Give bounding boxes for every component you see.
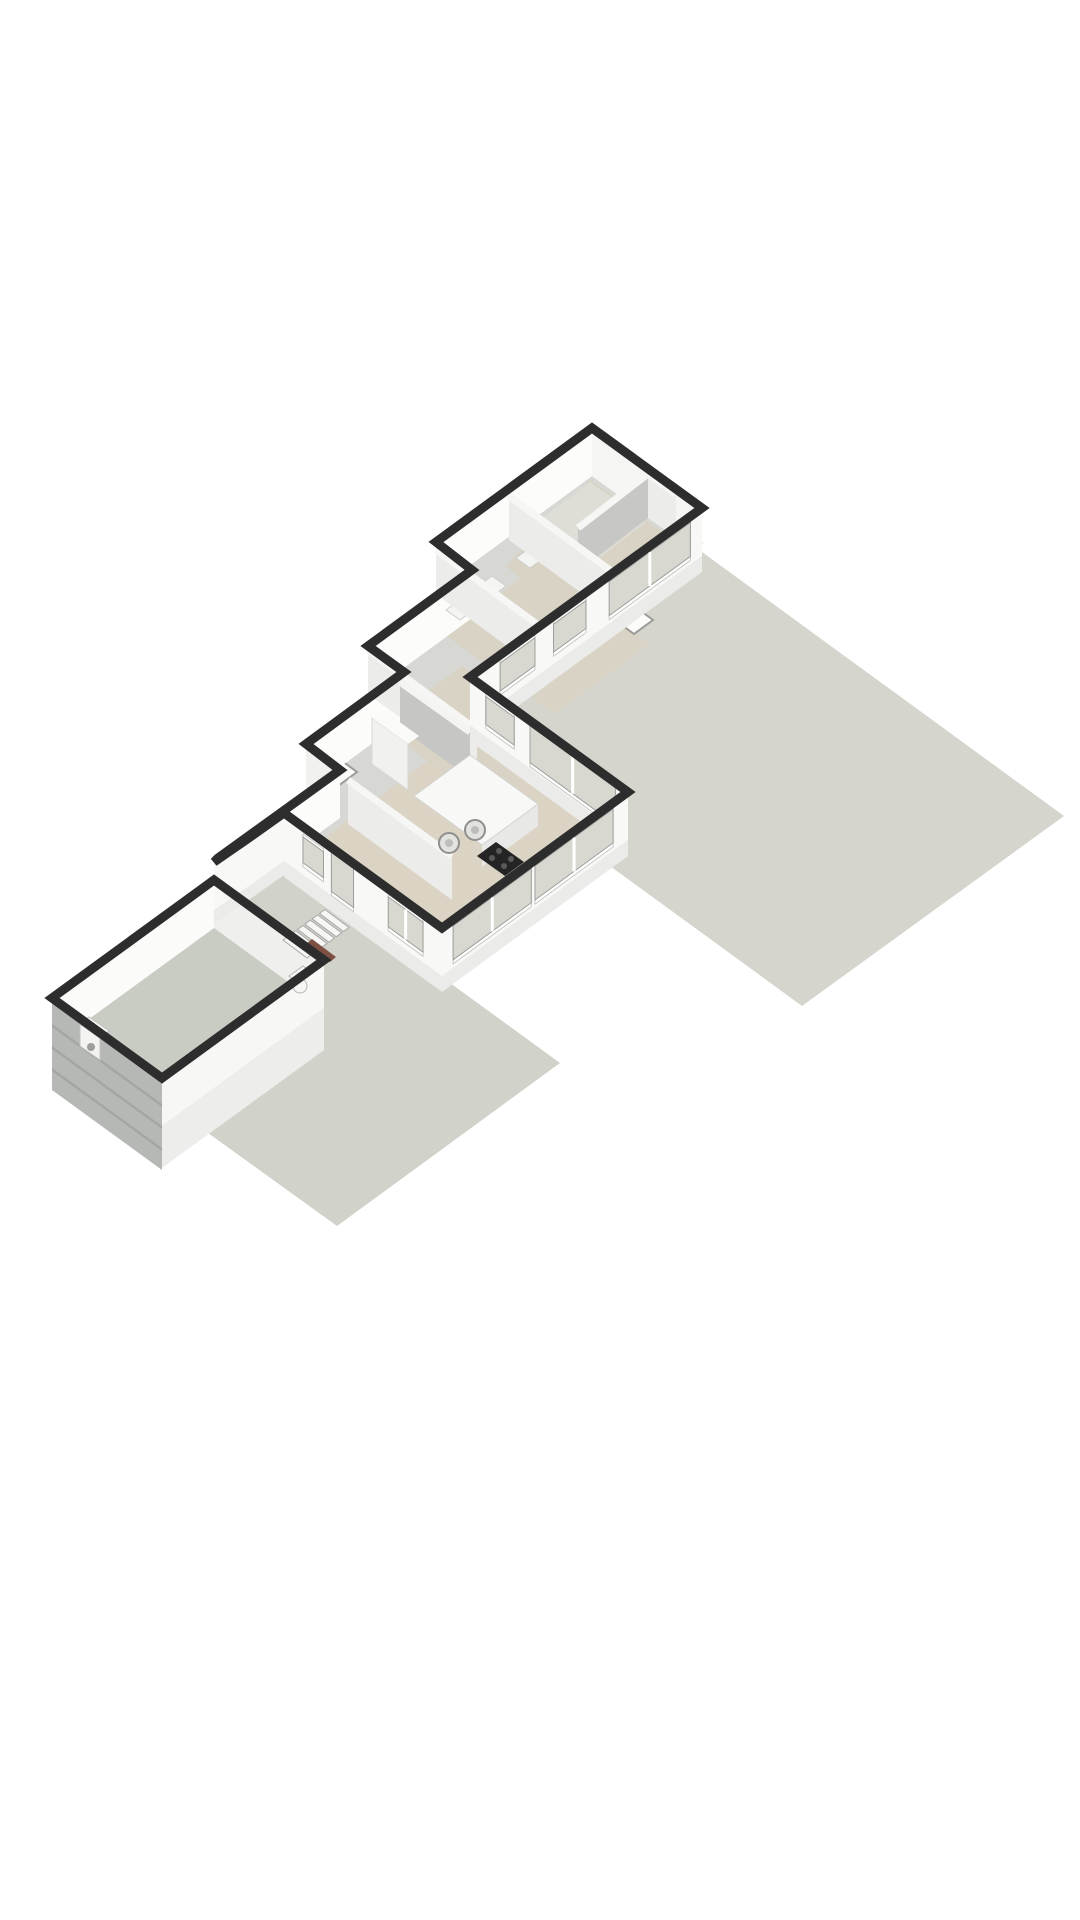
sink-drain-2 (471, 826, 479, 834)
burner-1 (496, 848, 502, 854)
sink-drain-1 (445, 839, 453, 847)
floor-plan-3d-render (0, 0, 1080, 1920)
burner-4 (501, 863, 507, 869)
boiler-vent (87, 1043, 95, 1051)
burner-3 (489, 855, 495, 861)
floorplan-page (0, 0, 1080, 1920)
burner-2 (508, 856, 514, 862)
